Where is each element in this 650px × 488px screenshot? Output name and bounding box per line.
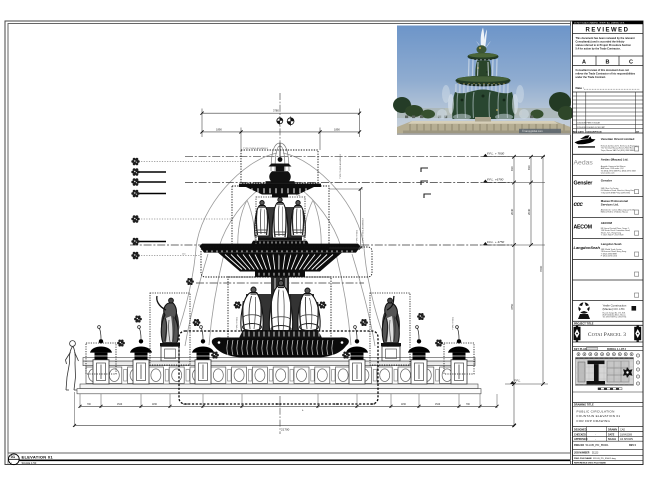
svg-text:810: 810 <box>510 166 514 171</box>
svg-text:01: 01 <box>11 454 16 459</box>
svg-text:F: (852) 2576 0416: F: (852) 2576 0416 <box>601 256 617 258</box>
svg-text:5.4 for action by the Trade Co: 5.4 for action by the Trade Contractor. <box>576 48 621 51</box>
svg-text:4750: 4750 <box>510 303 514 310</box>
svg-text:DRAWN: DRAWN <box>608 428 617 431</box>
svg-text:1150: 1150 <box>152 404 158 406</box>
svg-text:REV 0: REV 0 <box>629 444 637 447</box>
svg-text:F.F.L. + 7600: F.F.L. + 7600 <box>487 152 504 156</box>
svg-text:REFERENCE DWG FILE NAME: REFERENCE DWG FILE NAME <box>574 461 606 464</box>
svg-text:APPROVED: APPROVED <box>574 438 588 441</box>
svg-text:511UB_PD_85001: 511UB_PD_85001 <box>586 443 610 447</box>
svg-text:DATE: DATE <box>578 130 584 133</box>
svg-text:FRP PACKAGE: FRP PACKAGE <box>384 319 387 335</box>
svg-text:1540: 1540 <box>117 404 123 406</box>
svg-text:Services Ltd.: Services Ltd. <box>601 203 619 207</box>
svg-text:www.aedas.com: www.aedas.com <box>601 173 615 175</box>
svg-text:-: - <box>11 461 12 465</box>
svg-text:FOR FRP DRAWING: FOR FRP DRAWING <box>577 419 611 423</box>
svg-text:CHECKED: CHECKED <box>574 433 586 436</box>
svg-text:T: 2317 7000 F: 2317 7609: T: 2317 7000 F: 2317 7609 <box>601 235 624 237</box>
svg-text:1890: 1890 <box>216 127 222 131</box>
svg-text:10/04/2009: 10/04/2009 <box>620 433 633 436</box>
svg-text:TYPE THB02: TYPE THB02 <box>357 229 359 243</box>
svg-text:BY: BY <box>636 131 640 133</box>
svg-text:TYPE THB01: TYPE THB01 <box>453 316 455 330</box>
svg-text:TYPE THB03 ASSEMBLY: TYPE THB03 ASSEMBLY <box>339 153 342 179</box>
svg-text:21700: 21700 <box>281 428 290 432</box>
svg-text:REVIEWED: REVIEWED <box>585 28 629 34</box>
svg-text:LangdonSeah: LangdonSeah <box>574 245 601 250</box>
svg-text:PROJECT TITLE: PROJECT TITLE <box>574 322 594 325</box>
svg-text:SCALE: SCALE <box>608 438 617 441</box>
svg-text:DWG NO: DWG NO <box>574 444 584 447</box>
svg-text:B: B <box>606 60 610 66</box>
svg-text:(Macau) CO. LTD.: (Macau) CO. LTD. <box>603 307 626 311</box>
svg-text:status referred to in Project: status referred to in Project Procedure … <box>576 44 632 47</box>
svg-text:1150: 1150 <box>401 404 407 406</box>
svg-text:PARCEL 1, LOT 2: PARCEL 1, LOT 2 <box>607 348 627 351</box>
svg-text:AECOM: AECOM <box>601 221 613 225</box>
svg-text:Gensler: Gensler <box>574 180 594 186</box>
svg-text:51123: 51123 <box>592 452 599 454</box>
svg-text:Gensler: Gensler <box>601 179 613 183</box>
svg-text:D0 N0T SCALE DRAWING. VERIFY A: D0 N0T SCALE DRAWING. VERIFY ALL DIMENS.… <box>574 22 625 25</box>
svg-text:3780: 3780 <box>273 109 279 113</box>
svg-text:1280: 1280 <box>370 404 376 406</box>
svg-text:A: A <box>582 60 586 66</box>
svg-text:TYPE THB04 ASSEMBLY: TYPE THB04 ASSEMBLY <box>243 147 269 150</box>
svg-text:ccc: ccc <box>574 201 584 208</box>
svg-text:7.5N: 7.5N <box>296 195 301 197</box>
svg-text:22/04/09: 22/04/09 <box>577 127 586 129</box>
svg-text:10/04/09: 10/04/09 <box>577 123 586 125</box>
svg-text:F.F.L. +6790: F.F.L. +6790 <box>487 177 504 181</box>
svg-text:7600: 7600 <box>539 265 543 272</box>
svg-text:DRAWING TITLE: DRAWING TITLE <box>574 404 594 407</box>
svg-text:FOUNTAIN ELEVATION 01: FOUNTAIN ELEVATION 01 <box>577 414 621 418</box>
svg-text:Consultant review of this docu: Consultant review of this document does … <box>576 69 630 72</box>
svg-text:C: C <box>629 60 633 66</box>
svg-text:ISSUED FOR FRP: ISSUED FOR FRP <box>587 127 606 129</box>
svg-text:This document has been reviewe: This document has been reviewed by the r… <box>576 37 635 40</box>
svg-text:511UB_PD_85001.dwg: 511UB_PD_85001.dwg <box>593 458 616 460</box>
svg-text:Aedas: Aedas <box>574 159 594 166</box>
svg-text:1450: 1450 <box>334 404 340 406</box>
svg-text:DWG FILE NAME: DWG FILE NAME <box>574 457 592 460</box>
svg-text:under the Trade Contract.: under the Trade Contract. <box>576 76 607 79</box>
svg-text:Date :: Date : <box>576 86 584 90</box>
svg-text:DESIGNED: DESIGNED <box>574 428 587 431</box>
svg-text:KEY PLAN: KEY PLAN <box>574 348 587 351</box>
svg-text:Edificio Hotline 17 Andar, Ma: Edificio Hotline 17 Andar, Macau <box>601 211 628 214</box>
svg-text:T 852.2599.8788 F 852.2599.87: T 852.2599.8788 F 852.2599.8780 <box>601 192 630 194</box>
svg-text:DATE: DATE <box>608 433 615 436</box>
svg-text:AECOM: AECOM <box>574 225 592 231</box>
svg-text:2900: 2900 <box>276 404 282 406</box>
svg-text:810: 810 <box>527 165 531 170</box>
svg-text:SCALE 1:50: SCALE 1:50 <box>22 461 37 465</box>
svg-text:1450: 1450 <box>219 404 225 406</box>
svg-text:Taipa, Macao SAR Tel: (853) 2: Taipa, Macao SAR Tel: (853) 2882 8888 <box>601 149 635 152</box>
svg-text:1280: 1280 <box>183 404 189 406</box>
svg-text:1540: 1540 <box>435 404 441 406</box>
svg-text:ELEVATION 01: ELEVATION 01 <box>22 455 54 460</box>
svg-text:© lampglobal.com: © lampglobal.com <box>522 129 543 133</box>
svg-text:PUBLIC CIRCULATION: PUBLIC CIRCULATION <box>577 410 615 414</box>
svg-text:CAD: CAD <box>620 428 625 431</box>
svg-text:AS SHOWN: AS SHOWN <box>620 438 633 441</box>
svg-text:relieve the Trade Contractor o: relieve the Trade Contractor of his resp… <box>576 72 636 75</box>
svg-text:DESCRIPTION: DESCRIPTION <box>587 131 602 133</box>
svg-text:Venetian Orient Limited: Venetian Orient Limited <box>601 137 635 141</box>
svg-text:F.F.L.: F.F.L. <box>514 379 521 383</box>
svg-text:Langdon Seah: Langdon Seah <box>601 242 622 246</box>
svg-text:2040: 2040 <box>510 208 514 215</box>
svg-text:TYPE THB01: TYPE THB01 <box>237 316 239 330</box>
svg-text:Tel: 28727738 Fax: 28727734: Tel: 28727738 Fax: 28727734 <box>603 317 627 319</box>
svg-text:FIRST ISSUE: FIRST ISSUE <box>587 123 601 125</box>
svg-text:Aedas (Macau) Ltd.: Aedas (Macau) Ltd. <box>601 158 629 162</box>
svg-text:F.F.L. + 4750: F.F.L. + 4750 <box>487 240 504 244</box>
svg-text:Consultant(s) and is accorded: Consultant(s) and is accorded the felici… <box>576 40 626 43</box>
svg-text:2040: 2040 <box>527 208 531 215</box>
svg-text:JOB NUMBER: JOB NUMBER <box>574 452 590 454</box>
svg-text:TYPE THB02 ASSEMBLY: TYPE THB02 ASSEMBLY <box>362 217 365 243</box>
svg-text:1890: 1890 <box>334 127 340 131</box>
